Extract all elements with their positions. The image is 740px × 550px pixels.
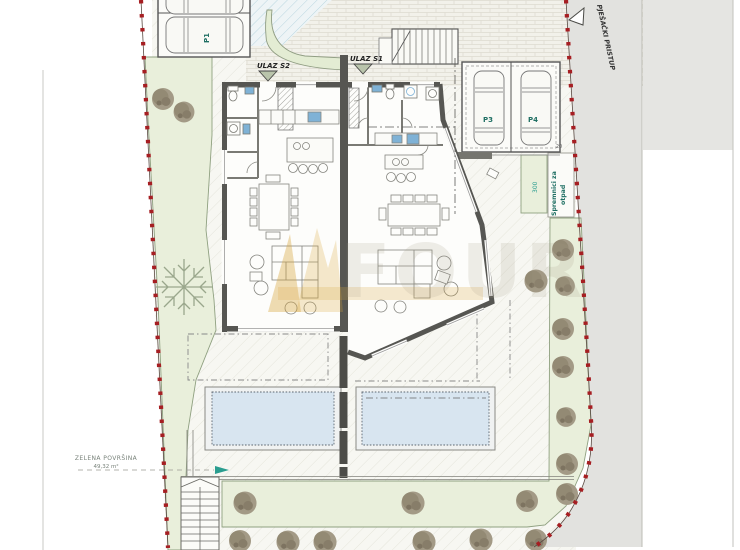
label-ulaz-s2: ULAZ S2 (257, 62, 290, 70)
parking-area-top-left (158, 0, 250, 57)
label-dim-300: 300 (532, 181, 539, 193)
site-plan-drawing: FOUR ULAZ S2 ULAZ S1 PJEŠAČKI PRISTUP P1… (0, 0, 740, 550)
label-dim-20: 20 (556, 144, 562, 150)
car-outline (166, 0, 243, 14)
pool-right (362, 392, 489, 445)
big-tree (156, 259, 212, 315)
watermark-text: FOUR (340, 229, 587, 315)
label-green-area-size: 49,32 m² (93, 463, 118, 470)
label-parking-p3: P3 (483, 116, 493, 124)
left-outside-white (0, 0, 167, 550)
watermark: FOUR (268, 228, 587, 315)
pool-left (212, 392, 334, 445)
parking-area-right (448, 62, 560, 159)
stairs-bottom (181, 477, 219, 550)
label-waste-1: Spremnici za (551, 171, 558, 216)
car-outline (474, 71, 504, 145)
site-plan-page: FOUR ULAZ S2 ULAZ S1 PJEŠAČKI PRISTUP P1… (0, 0, 740, 550)
label-ulaz-s1: ULAZ S1 (350, 55, 383, 63)
label-waste-2: otpad (560, 185, 567, 205)
car-outline (521, 71, 551, 145)
wardrobe (349, 88, 359, 128)
label-parking-p4: P4 (528, 116, 538, 124)
label-parking-p1: P1 (203, 33, 211, 43)
label-green-area: ZELENA POVRŠINA (75, 455, 138, 462)
